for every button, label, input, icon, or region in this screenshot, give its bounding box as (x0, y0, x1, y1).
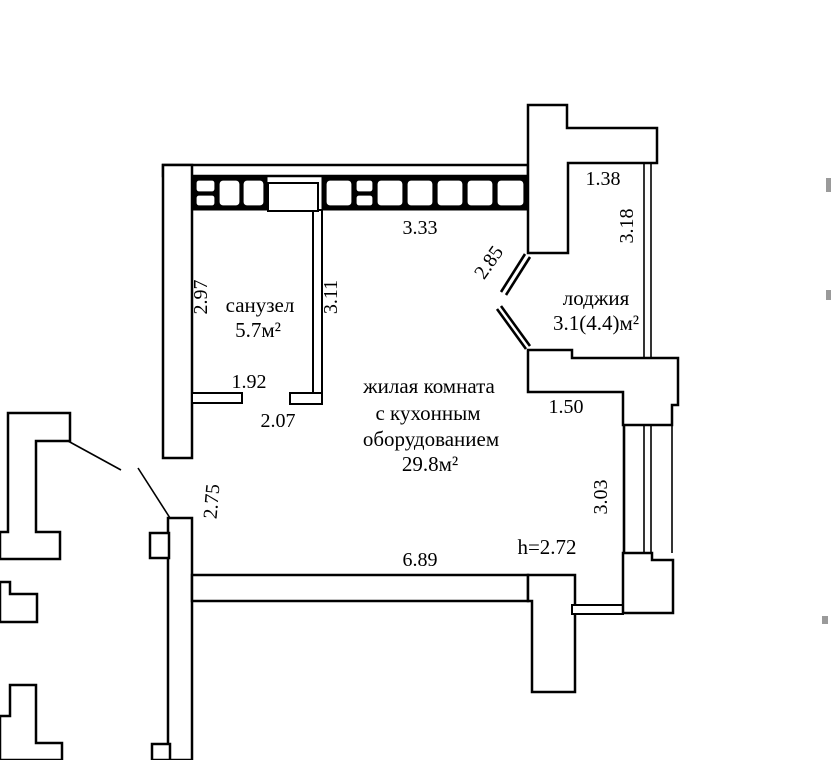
dim-loggia-angled-glazing: 2.85 (470, 242, 508, 283)
dim-top-window: 3.33 (403, 217, 438, 239)
top-outer-wall (163, 165, 528, 176)
door-swing-line-neighbor (68, 441, 121, 470)
window-pane (407, 180, 433, 206)
floor-plan-page: санузел 5.7м² 2.97 3.11 1.92 2.07 3.33 2… (0, 0, 831, 760)
loggia-label: лоджия (563, 286, 630, 310)
window-pane (356, 195, 373, 206)
window-pane (196, 195, 215, 206)
dim-room-bottom: 6.89 (403, 549, 438, 571)
living-room-label-line2: с кухонным (375, 401, 480, 425)
angled-glazing-lower (497, 309, 526, 349)
scan-specks (822, 178, 831, 624)
door-swing-line-entrance (138, 468, 170, 518)
window-pier (268, 183, 318, 211)
living-room-label-line1: жилая комната (362, 374, 495, 398)
dim-room-right-top: 1.50 (549, 396, 584, 418)
window-pane (326, 180, 352, 206)
living-room-area: 29.8м² (402, 452, 458, 476)
left-wall-stub (150, 533, 169, 558)
bathroom-label: санузел (226, 293, 295, 317)
window-pane (497, 180, 524, 206)
window-pane (243, 180, 264, 206)
dim-loggia-side: 3.18 (616, 209, 638, 244)
bathroom-door-jamb (290, 393, 322, 404)
window-pane (356, 180, 373, 192)
angled-glazing-lower (501, 306, 530, 346)
left-outer-wall-upper (163, 165, 192, 458)
dim-bathroom-height: 2.97 (190, 280, 212, 315)
floor-plan-drawing: санузел 5.7м² 2.97 3.11 1.92 2.07 3.33 2… (0, 0, 831, 760)
left-wall-bottom-stub (152, 744, 170, 760)
window-pane (467, 180, 493, 206)
neighbor-wall-middle (0, 582, 37, 622)
dim-room-left-wall: 3.11 (320, 280, 342, 314)
bathroom-area: 5.7м² (235, 318, 281, 342)
window-pane (219, 180, 240, 206)
bathroom-bottom-stub (192, 393, 242, 403)
room-bottom-wall (192, 575, 528, 601)
neighbor-wall-upper (0, 413, 70, 559)
window-pane (196, 180, 215, 192)
loggia-area: 3.1(4.4)м² (553, 311, 639, 335)
window-pane (377, 180, 403, 206)
bottom-right-pier (528, 575, 575, 692)
window-pane (437, 180, 463, 206)
speck (826, 290, 831, 300)
speck (822, 616, 828, 624)
ceiling-height-label: h=2.72 (517, 535, 576, 559)
dim-entrance-wall: 2.75 (200, 483, 225, 520)
living-room-label-line3: оборудованием (363, 427, 499, 451)
bottom-right-bar (572, 605, 623, 614)
dim-bathroom-stub: 1.92 (232, 371, 267, 393)
speck (826, 178, 831, 192)
neighbor-walls (0, 413, 170, 760)
dim-loggia-top: 1.38 (586, 168, 621, 190)
right-wall-bottom-block (623, 553, 673, 613)
dim-bathroom-opening: 2.07 (261, 410, 296, 432)
neighbor-wall-lower (0, 685, 62, 760)
dim-right-window: 3.03 (590, 480, 612, 515)
left-outer-wall-lower (168, 518, 192, 760)
